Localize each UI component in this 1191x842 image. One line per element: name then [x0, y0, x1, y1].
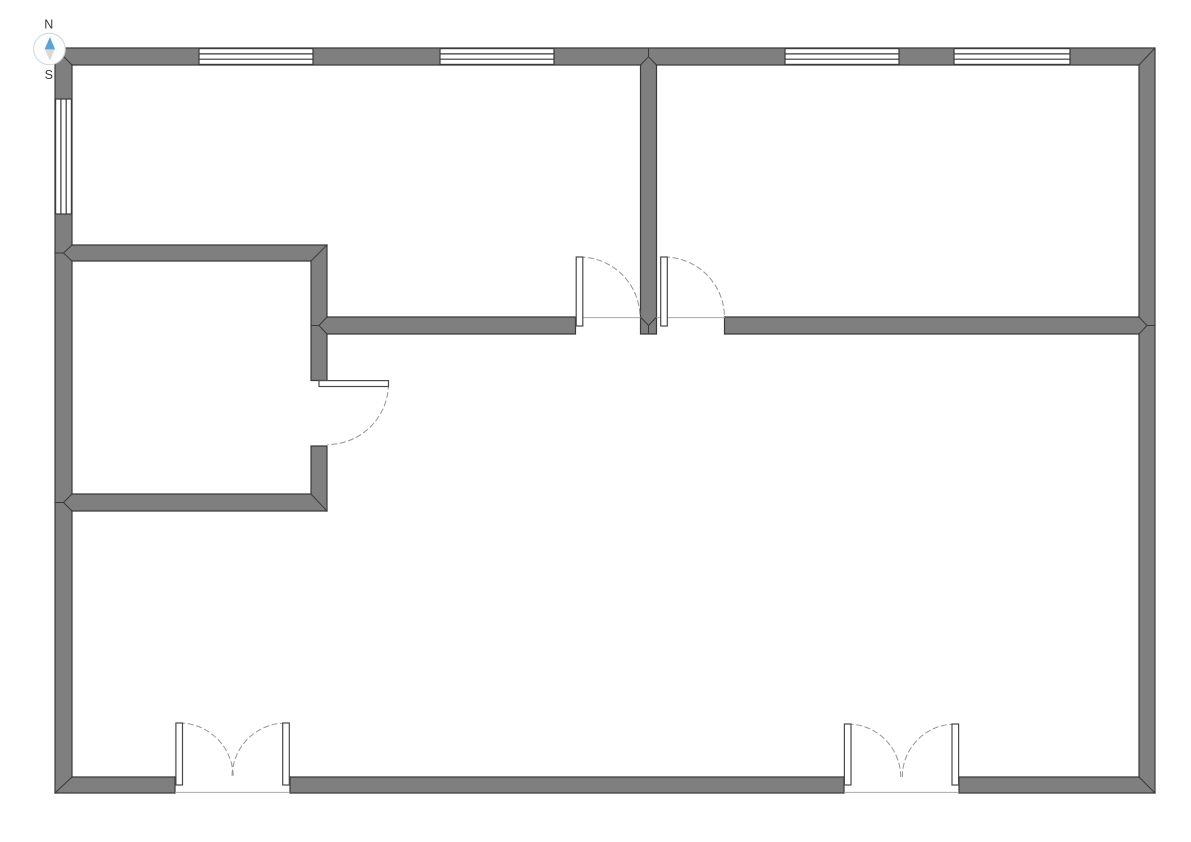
svg-text:S: S [45, 68, 53, 82]
svg-text:N: N [44, 18, 53, 32]
